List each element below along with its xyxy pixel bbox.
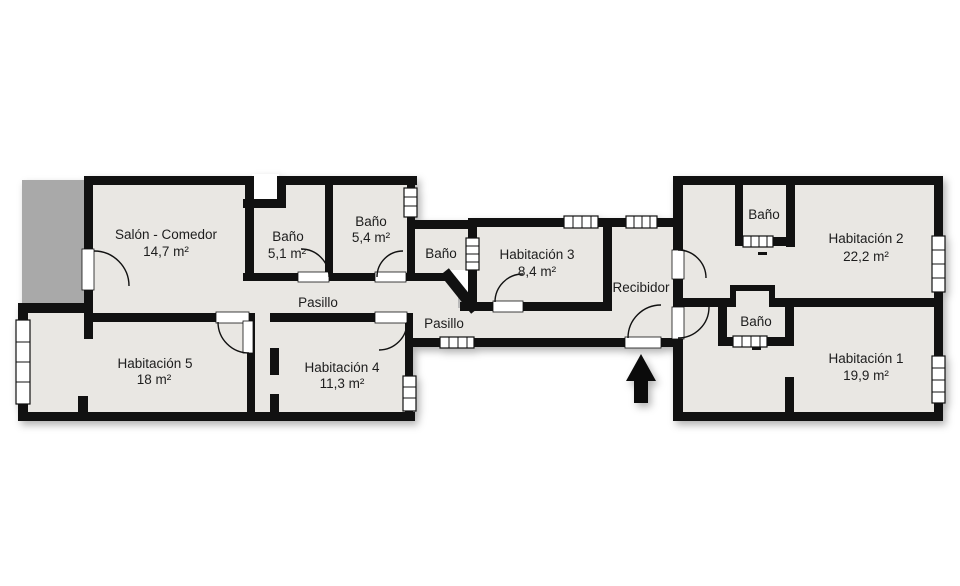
door-hab1-zone bbox=[672, 307, 684, 339]
room-label-hab4: Habitación 4 bbox=[304, 360, 380, 375]
room-area-hab3: 8,4 m² bbox=[518, 264, 557, 279]
room-area-hab5: 18 m² bbox=[137, 372, 172, 387]
corridor-label-left: Pasillo bbox=[298, 295, 338, 310]
door-hab4 bbox=[375, 312, 407, 323]
threshold-mark bbox=[758, 252, 767, 255]
window-bano-54 bbox=[404, 188, 417, 217]
window-hab5 bbox=[16, 320, 30, 404]
entrance-arrow-icon bbox=[626, 354, 656, 403]
window-pasillo bbox=[440, 337, 474, 348]
room-label-bano-top-right: Baño bbox=[748, 207, 780, 222]
room-area-salon: 14,7 m² bbox=[143, 244, 189, 259]
room-area-bano-51: 5,1 m² bbox=[268, 246, 307, 261]
room-area-bano-54: 5,4 m² bbox=[352, 230, 391, 245]
room-area-hab2: 22,2 m² bbox=[843, 249, 889, 264]
balcony bbox=[22, 180, 84, 306]
window-recibidor-top bbox=[626, 216, 657, 228]
room-label-bano-54: Baño bbox=[355, 214, 387, 229]
room-label-hab1: Habitación 1 bbox=[828, 351, 903, 366]
room-floor-bano-54 bbox=[330, 180, 410, 278]
room-label-bano-mid: Baño bbox=[425, 246, 457, 261]
window-hab4 bbox=[403, 376, 416, 411]
door-bano-54 bbox=[375, 272, 406, 282]
door-hab3 bbox=[493, 301, 523, 312]
door-balcony bbox=[82, 249, 94, 290]
room-area-hab1: 19,9 m² bbox=[843, 368, 889, 383]
door-hab2-zone bbox=[672, 250, 684, 279]
room-label-hab5: Habitación 5 bbox=[117, 356, 192, 371]
window-hab2 bbox=[932, 236, 945, 292]
slider-bano-top-right bbox=[743, 236, 773, 247]
window-hab3-top bbox=[564, 216, 598, 228]
room-label-salon: Salón - Comedor bbox=[115, 227, 218, 242]
room-label-bano-51: Baño bbox=[272, 229, 304, 244]
door-bano-51 bbox=[298, 272, 329, 282]
slider-bano-bottom-right bbox=[733, 336, 767, 347]
door-entrance bbox=[625, 337, 661, 348]
room-label-bano-bottom-right: Baño bbox=[740, 314, 772, 329]
floorplan: Salón - Comedor 14,7 m² Baño 5,1 m² Baño… bbox=[0, 0, 960, 586]
corridor-label-right: Pasillo bbox=[424, 316, 464, 331]
room-label-recibidor: Recibidor bbox=[612, 280, 670, 295]
room-label-hab2: Habitación 2 bbox=[828, 231, 903, 246]
window-hab1 bbox=[932, 356, 945, 403]
door-hab5-leaf bbox=[243, 321, 253, 353]
window-bano-mid bbox=[466, 238, 479, 270]
floorplan-canvas: Salón - Comedor 14,7 m² Baño 5,1 m² Baño… bbox=[0, 0, 960, 586]
room-label-hab3: Habitación 3 bbox=[499, 247, 574, 262]
room-area-hab4: 11,3 m² bbox=[320, 376, 365, 391]
